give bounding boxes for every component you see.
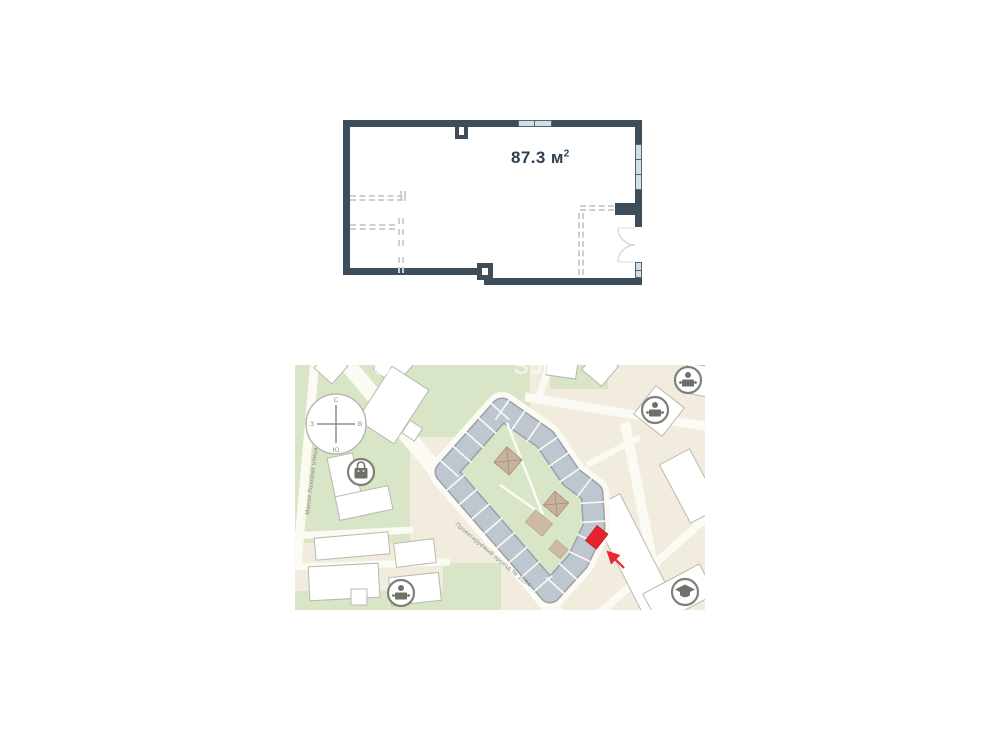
person-desk-icon [388, 580, 414, 606]
window-mullion [635, 174, 642, 175]
compass-west: З [310, 421, 314, 428]
compass-east: В [358, 421, 362, 428]
area-label: 87.3 м2 [511, 148, 570, 168]
location-map[interactable]: С Ю З В [295, 365, 705, 610]
wall-left [343, 120, 350, 275]
partition-dashed [350, 224, 395, 230]
graduation-cap-icon [672, 579, 698, 605]
person-desk-icon [675, 367, 701, 393]
listing-page: 87.3 м2 [0, 0, 1000, 750]
wall-stub-right [615, 203, 642, 215]
shopping-bag-icon [348, 459, 374, 485]
wall-top [343, 120, 642, 127]
person-desk-icon [642, 397, 668, 423]
partition-dashed [400, 191, 406, 201]
door-swing-arcs [601, 225, 637, 265]
watermark-fragment: S5Е [513, 365, 558, 380]
compass-rose: С Ю З В [306, 394, 366, 454]
window-mullion [635, 159, 642, 160]
partition-dashed [398, 257, 404, 273]
partition-dashed [350, 195, 403, 201]
window-right-upper [635, 144, 642, 190]
partition-dashed [398, 218, 404, 246]
area-sup: 2 [564, 148, 570, 159]
wall-bottom-right [484, 278, 642, 285]
compass-north: С [334, 397, 339, 404]
area-unit: м [551, 148, 564, 167]
wall-right-upper [635, 120, 642, 144]
floor-plan: 87.3 м2 [343, 115, 643, 290]
partition-dashed [578, 213, 584, 275]
map-graphic: С Ю З В [295, 365, 705, 610]
area-value: 87.3 [511, 148, 546, 167]
pilaster-top [455, 127, 468, 139]
partition-dashed [580, 205, 614, 211]
watermark-fragment: U [373, 365, 392, 381]
pilaster-bottom-step [477, 263, 493, 280]
compass-south: Ю [333, 447, 340, 454]
window-mullion [534, 120, 535, 127]
wall-bottom-left [343, 268, 489, 275]
window-mullion [635, 270, 642, 271]
window-top [518, 120, 552, 127]
